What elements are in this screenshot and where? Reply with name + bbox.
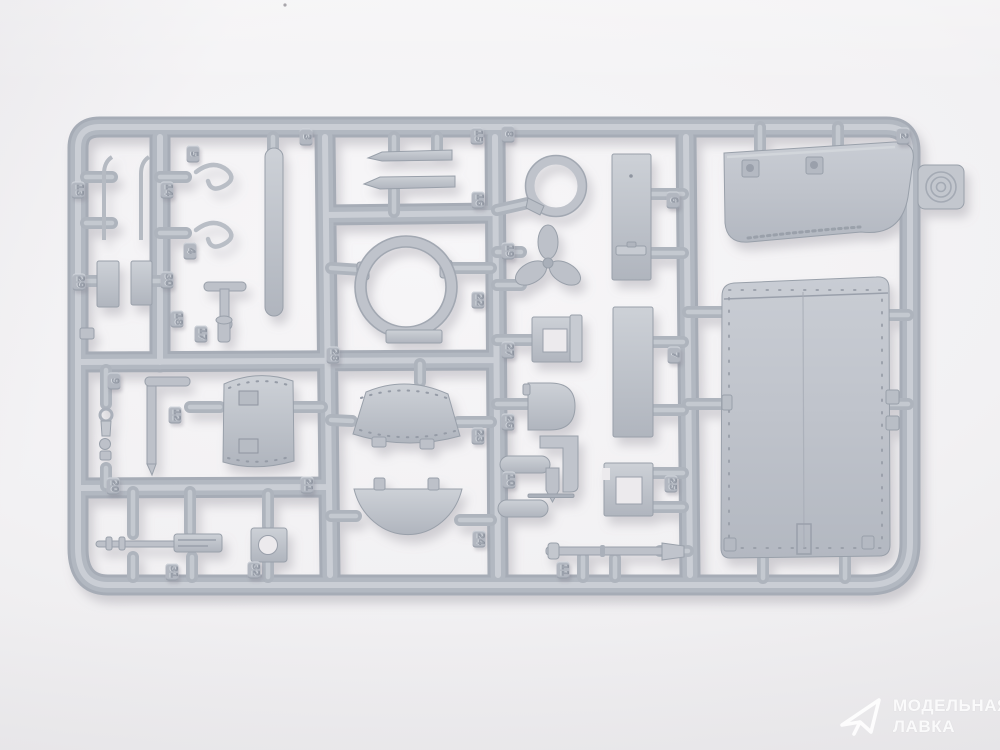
dust-speck — [283, 3, 286, 6]
watermark-text-line2: ЛАВКА — [893, 716, 1000, 737]
watermark-text: МОДЕЛЬНАЯ ЛАВКА — [893, 695, 1000, 738]
part-periscope-cap — [216, 316, 232, 324]
part-half-round-plate — [354, 478, 462, 535]
part-turret-ring — [355, 236, 457, 343]
part-blade — [364, 176, 455, 189]
part-rect-plate — [97, 261, 119, 307]
part-machine-gun — [96, 534, 222, 552]
part-blade — [368, 150, 452, 161]
part-mast-stem — [147, 386, 156, 464]
part-rect-plate — [131, 261, 152, 305]
part-hatch-frame — [532, 315, 582, 362]
part-mast-tip — [147, 464, 156, 475]
part-curved-plate-left — [223, 376, 294, 467]
part-square-frame — [602, 463, 653, 516]
part-cylinder-cluster — [498, 436, 578, 517]
part-d-plate — [523, 383, 575, 430]
watermark-text-line1: МОДЕЛЬНАЯ — [893, 695, 1000, 716]
part-hull-panel — [721, 277, 899, 558]
part-bracket-hole — [251, 528, 287, 562]
sprue — [78, 127, 964, 585]
part-small-block — [80, 328, 94, 339]
part-t-stem — [220, 289, 229, 317]
part-plank — [612, 154, 651, 280]
mold-stamp — [918, 165, 964, 209]
part-mast-crossbar — [145, 377, 190, 386]
part-blade-panel — [724, 142, 913, 242]
watermark: МОДЕЛЬНАЯ ЛАВКА — [838, 693, 1000, 739]
part-curved-fender — [353, 384, 460, 449]
paper-plane-logo-icon — [838, 693, 884, 739]
part-small-ring — [526, 156, 587, 217]
part-hook — [196, 165, 231, 247]
sprue-photo — [0, 0, 1000, 750]
part-long-bar — [265, 148, 283, 316]
part-shackle — [100, 409, 113, 460]
part-plank — [613, 307, 653, 437]
